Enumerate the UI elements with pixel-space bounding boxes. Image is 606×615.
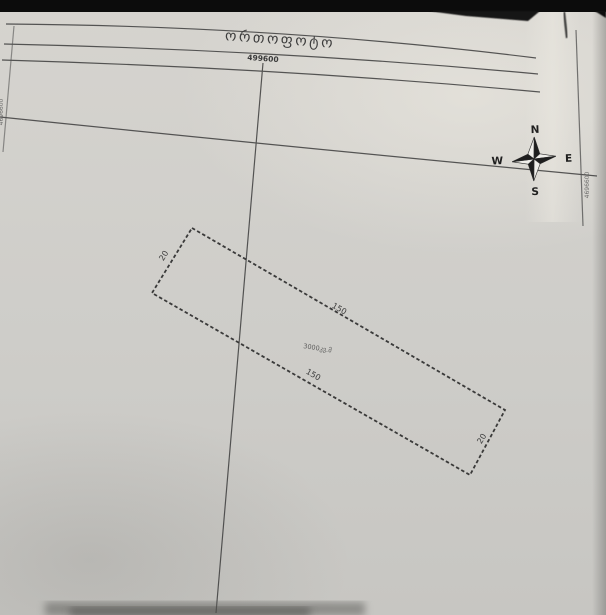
letterbox-bar: [0, 0, 606, 12]
plan-canvas: ორთოფოტო 499600 4696600 4696600 N E S W …: [0, 0, 606, 615]
northing-coordinate-label-left: 4696600: [0, 98, 5, 125]
page-right-edge-shade: [592, 12, 606, 615]
bottom-edge-shadow-dark: [70, 607, 310, 615]
paper-background: [0, 0, 606, 615]
compass-east-label: E: [565, 153, 573, 165]
compass-north-label: N: [530, 124, 539, 136]
compass-west-label: W: [491, 155, 503, 167]
northing-coordinate-label-right: 4696600: [584, 171, 591, 198]
compass-south-label: S: [531, 186, 539, 198]
scanned-orthophoto-plan: ორთოფოტო 499600 4696600 4696600 N E S W …: [0, 0, 606, 615]
